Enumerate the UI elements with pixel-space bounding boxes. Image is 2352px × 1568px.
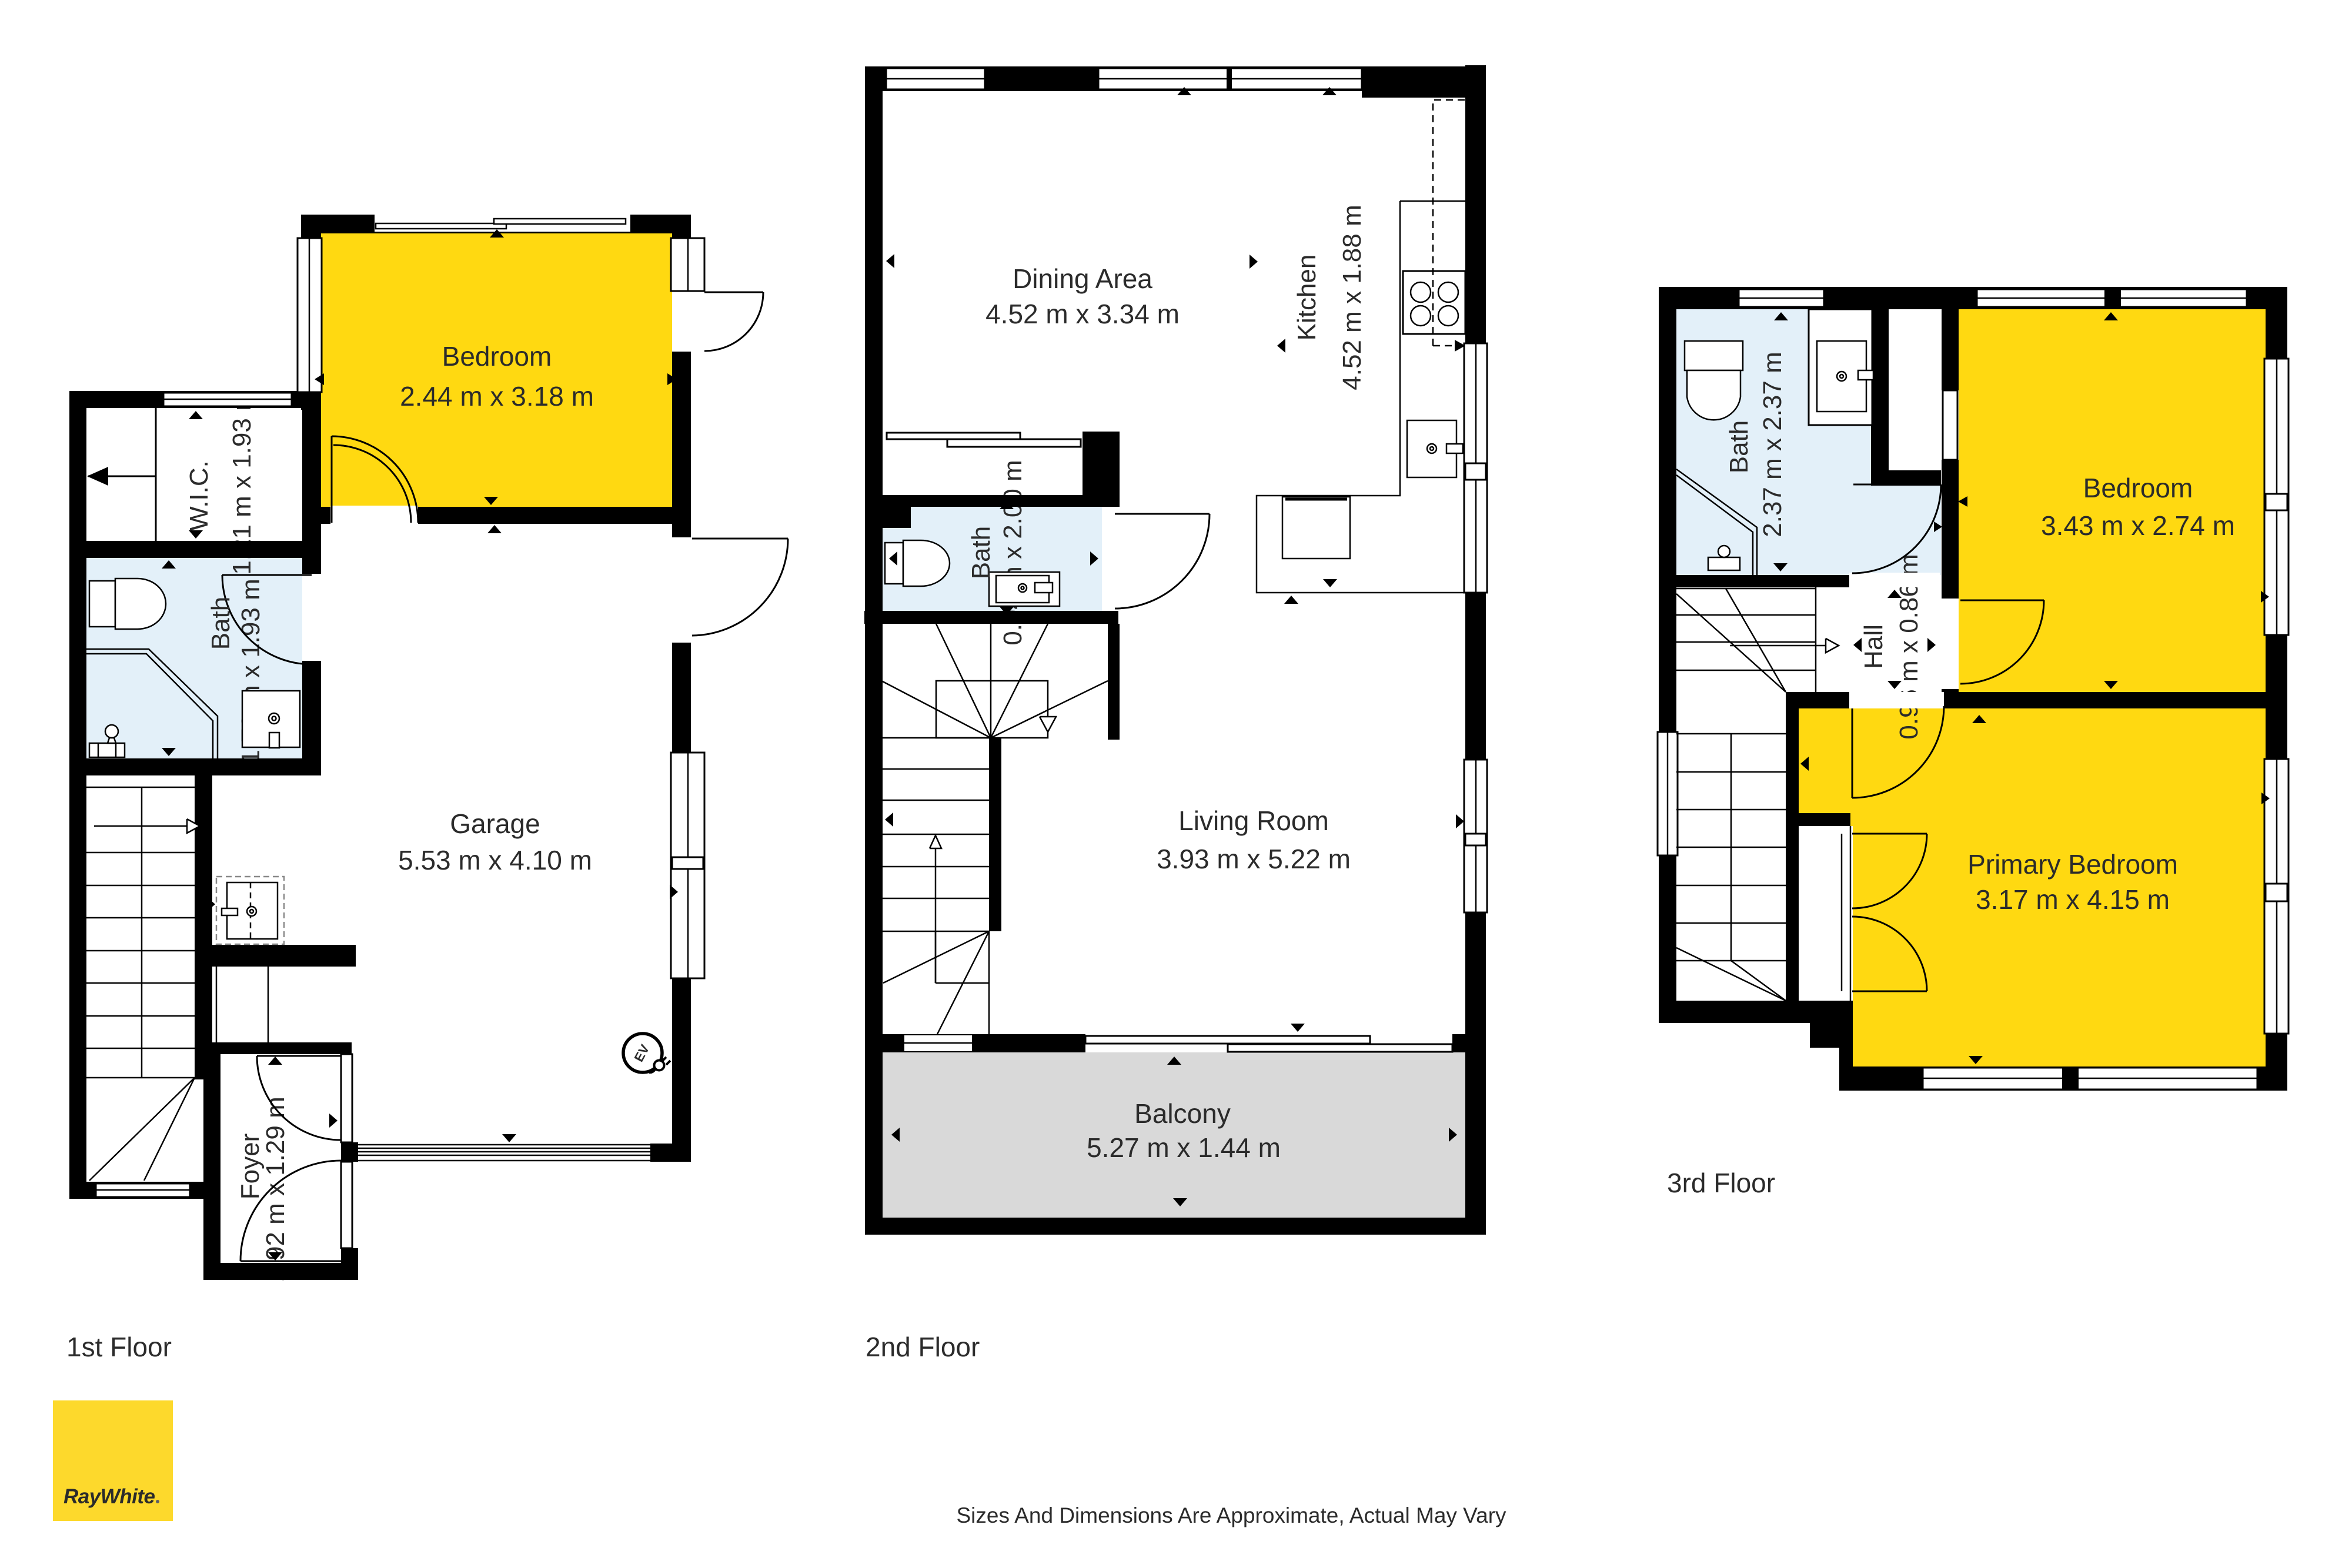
- svg-text:3.17 m x 4.15 m: 3.17 m x 4.15 m: [1976, 884, 2170, 915]
- svg-text:Foyer: Foyer: [236, 1134, 265, 1199]
- svg-text:3.43 m x 2.74 m: 3.43 m x 2.74 m: [2041, 510, 2235, 541]
- svg-text:3.93 m x 5.22 m: 3.93 m x 5.22 m: [1157, 844, 1351, 874]
- svg-text:Hall: Hall: [1859, 624, 1888, 669]
- svg-text:Bedroom: Bedroom: [2083, 473, 2193, 503]
- svg-text:Bath: Bath: [1725, 420, 1753, 474]
- svg-text:4.52 m x 1.88 m: 4.52 m x 1.88 m: [1338, 205, 1367, 390]
- svg-text:Bath: Bath: [206, 597, 235, 650]
- svg-text:2nd Floor: 2nd Floor: [866, 1332, 980, 1362]
- svg-text:Sizes And Dimensions Are Appro: Sizes And Dimensions Are Approximate, Ac…: [956, 1503, 1506, 1527]
- svg-text:Balcony: Balcony: [1134, 1098, 1231, 1129]
- svg-text:3rd Floor: 3rd Floor: [1667, 1168, 1775, 1198]
- svg-text:W.I.C.: W.I.C.: [185, 460, 213, 531]
- svg-text:Dining Area: Dining Area: [1013, 263, 1152, 294]
- svg-text:Primary Bedroom: Primary Bedroom: [1967, 849, 2178, 880]
- svg-text:Bedroom: Bedroom: [442, 341, 552, 372]
- svg-text:4.52 m x 3.34 m: 4.52 m x 3.34 m: [985, 299, 1180, 329]
- svg-text:2.44 m x 3.18 m: 2.44 m x 3.18 m: [400, 381, 594, 412]
- svg-text:2.37 m x 2.37 m: 2.37 m x 2.37 m: [1758, 352, 1787, 537]
- svg-text:RayWhite: RayWhite: [64, 1485, 155, 1508]
- svg-text:Bath: Bath: [967, 526, 995, 580]
- svg-text:Garage: Garage: [450, 808, 540, 839]
- svg-text:1st Floor: 1st Floor: [66, 1332, 172, 1362]
- svg-text:Living Room: Living Room: [1178, 805, 1329, 836]
- svg-text:5.27 m x 1.44 m: 5.27 m x 1.44 m: [1087, 1132, 1281, 1163]
- svg-text:5.53 m x 4.10 m: 5.53 m x 4.10 m: [398, 845, 592, 875]
- svg-text:Kitchen: Kitchen: [1292, 255, 1321, 341]
